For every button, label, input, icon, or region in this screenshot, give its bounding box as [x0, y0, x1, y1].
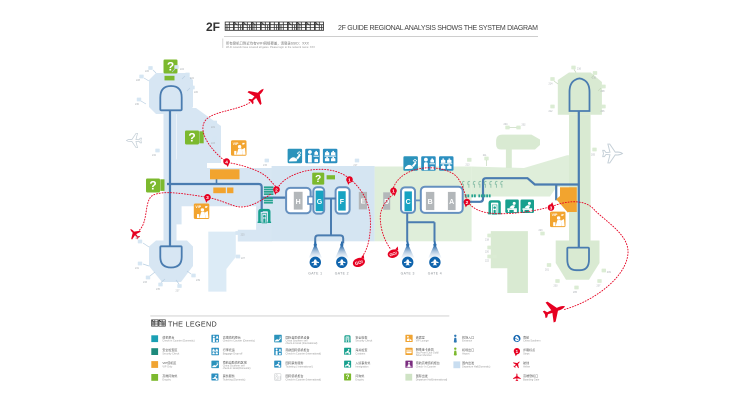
svg-text:233: 233	[143, 281, 148, 284]
svg-text:入境事务处: 入境事务处	[355, 360, 370, 365]
svg-text:Baggage Drop-off: Baggage Drop-off	[223, 353, 243, 356]
svg-text:217: 217	[353, 164, 358, 167]
svg-text:230: 230	[135, 103, 140, 106]
svg-text:232: 232	[152, 154, 157, 157]
svg-text:票务服务: 票务服务	[223, 373, 235, 378]
svg-text:1: 1	[392, 189, 395, 195]
svg-text:H: H	[296, 199, 301, 206]
svg-text:Wi-Fi network have covered all: Wi-Fi network have covered all gates. Pl…	[226, 45, 315, 49]
svg-text:204: 204	[504, 123, 509, 126]
svg-text:行李托运: 行李托运	[223, 347, 235, 352]
svg-text:216: 216	[577, 68, 582, 71]
svg-text:海关检查: 海关检查	[355, 347, 367, 352]
svg-text:Check-in Counter (Internation: Check-in Counter (International)	[286, 353, 322, 356]
svg-text:GATE 2: GATE 2	[335, 272, 349, 276]
svg-text:218: 218	[485, 239, 490, 242]
svg-text:南航高端值机柜台: 南航高端值机柜台	[416, 360, 440, 365]
svg-text:VIP Only: VIP Only	[162, 365, 173, 368]
svg-text:安全检查: 安全检查	[355, 334, 367, 339]
svg-text:G: G	[317, 199, 323, 206]
svg-text:安全检查区: 安全检查区	[162, 347, 177, 352]
svg-text:E: E	[361, 199, 366, 206]
svg-text:222: 222	[485, 260, 490, 263]
svg-text:Airline: Airline	[523, 365, 531, 368]
svg-text:206: 206	[601, 110, 606, 113]
svg-text:Check-in Counter (Domestic): Check-in Counter (Domestic)	[162, 340, 194, 343]
svg-text:2F: 2F	[206, 20, 220, 34]
svg-text:Departure Hall(Domestic): Departure Hall(Domestic)	[462, 365, 490, 368]
svg-text:214: 214	[549, 83, 554, 86]
svg-text:212: 212	[549, 110, 554, 113]
svg-text:208: 208	[601, 90, 606, 93]
svg-text:Enquiry: Enquiry	[162, 378, 171, 381]
svg-text:Ticketing (Domestic): Ticketing (Domestic)	[223, 378, 246, 381]
svg-text:F: F	[340, 199, 345, 206]
svg-text:202: 202	[522, 124, 527, 127]
svg-text:201: 201	[545, 269, 550, 272]
svg-text:China Southern: China Southern	[523, 340, 541, 343]
svg-text:2: 2	[275, 187, 278, 193]
svg-text:VIP值机区: VIP值机区	[162, 360, 176, 365]
svg-text:国际票务服务: 国际票务服务	[286, 360, 304, 365]
svg-text:机场出口: 机场出口	[462, 347, 474, 352]
svg-text:Check-in Counter (Internation: Check-in Counter (International)	[286, 378, 322, 381]
svg-text:213: 213	[466, 164, 471, 167]
svg-text:贵宾室: 贵宾室	[416, 334, 425, 339]
svg-text:Silver Member: Silver Member	[416, 354, 432, 357]
svg-text:215: 215	[263, 164, 268, 167]
svg-text:南航国际值机柜台: 南航国际值机柜台	[286, 347, 310, 352]
svg-text:GATE 3: GATE 3	[401, 272, 415, 276]
svg-text:228: 228	[136, 79, 141, 82]
svg-text:Immigration: Immigration	[355, 365, 369, 368]
svg-text:国际出发: 国际出发	[416, 373, 428, 378]
svg-text:205: 205	[573, 291, 578, 294]
svg-text:210: 210	[592, 77, 597, 80]
svg-text:值机柜台: 值机柜台	[162, 334, 174, 339]
svg-text:C: C	[406, 199, 411, 206]
svg-text:GATE 4: GATE 4	[428, 272, 442, 276]
svg-text:问询处: 问询处	[355, 373, 364, 378]
svg-text:227: 227	[241, 257, 246, 260]
svg-text:221: 221	[211, 126, 216, 129]
svg-text:231: 231	[135, 267, 140, 270]
svg-text:Check-in Counter (Domestic): Check-in Counter (Domestic)	[223, 340, 255, 343]
svg-text:B: B	[428, 199, 433, 206]
svg-text:国际值机柜台: 国际值机柜台	[286, 373, 304, 378]
svg-text:Enquiry: Enquiry	[355, 378, 364, 381]
svg-text:Airport: Airport	[462, 353, 470, 356]
svg-text:Ticketing ( International ): Ticketing ( International )	[286, 365, 314, 368]
svg-text:国内出发: 国内出发	[462, 360, 474, 365]
svg-text:高端值机柜台: 高端值机柜台	[223, 334, 241, 339]
svg-text:225: 225	[241, 234, 246, 237]
svg-text:207: 207	[597, 285, 602, 288]
svg-text:224: 224	[180, 68, 185, 71]
svg-text:Check- In Counter: Check- In Counter	[416, 365, 436, 368]
svg-text:南航: 南航	[523, 334, 529, 339]
svg-text:220: 220	[194, 91, 199, 94]
svg-text:222: 222	[190, 77, 195, 80]
svg-text:Boarding Gate: Boarding Gate	[523, 378, 540, 381]
svg-text:1: 1	[348, 177, 351, 183]
svg-text:所有登机口附近均有WIFI网络覆盖，请登录SSID：XXX: 所有登机口附近均有WIFI网络覆盖，请登录SSID：XXX	[226, 41, 310, 46]
svg-text:2F GUIDE REGIONAL ANALYSIS SHO: 2F GUIDE REGIONAL ANALYSIS SHOWS THE SYS…	[338, 25, 538, 32]
svg-text:高端登机口: 高端登机口	[523, 373, 538, 378]
svg-text:check-in kiosk(Domestic): check-in kiosk(Domestic)	[223, 367, 251, 370]
svg-text:205: 205	[591, 154, 596, 157]
svg-text:4: 4	[225, 160, 228, 166]
svg-text:VIP Lounge: VIP Lounge	[416, 340, 430, 343]
svg-text:步骤标点: 步骤标点	[523, 347, 535, 352]
svg-text:220: 220	[485, 251, 490, 254]
svg-text:229: 229	[135, 237, 140, 240]
svg-text:211: 211	[483, 154, 487, 157]
svg-text:Entrance: Entrance	[462, 340, 473, 343]
svg-text:3: 3	[206, 195, 209, 201]
svg-text:航线: 航线	[523, 360, 529, 365]
svg-text:Customs: Customs	[355, 353, 366, 356]
svg-text:237: 237	[176, 290, 181, 293]
svg-text:209: 209	[607, 271, 612, 274]
svg-text:Security Check: Security Check	[355, 340, 373, 343]
svg-text:3: 3	[550, 205, 553, 211]
svg-text:223: 223	[211, 142, 216, 145]
svg-text:Security Check: Security Check	[162, 353, 180, 356]
svg-text:check-in kiosk (International): check-in kiosk (International)	[286, 342, 318, 345]
svg-text:Departure Hall(International): Departure Hall(International)	[416, 378, 448, 381]
svg-text:2: 2	[466, 200, 469, 206]
svg-text:Steps: Steps	[523, 353, 530, 356]
svg-text:203: 203	[554, 285, 559, 288]
svg-text:高端问询处: 高端问询处	[162, 373, 177, 378]
svg-text:A: A	[449, 199, 454, 206]
svg-text:239: 239	[196, 279, 201, 282]
svg-text:235: 235	[156, 288, 161, 291]
svg-text:GATE 1: GATE 1	[308, 272, 322, 276]
svg-text:223: 223	[539, 229, 544, 232]
svg-text:机场入口: 机场入口	[462, 334, 474, 339]
svg-text:THE LEGEND: THE LEGEND	[168, 319, 217, 328]
svg-text:226: 226	[145, 70, 150, 73]
